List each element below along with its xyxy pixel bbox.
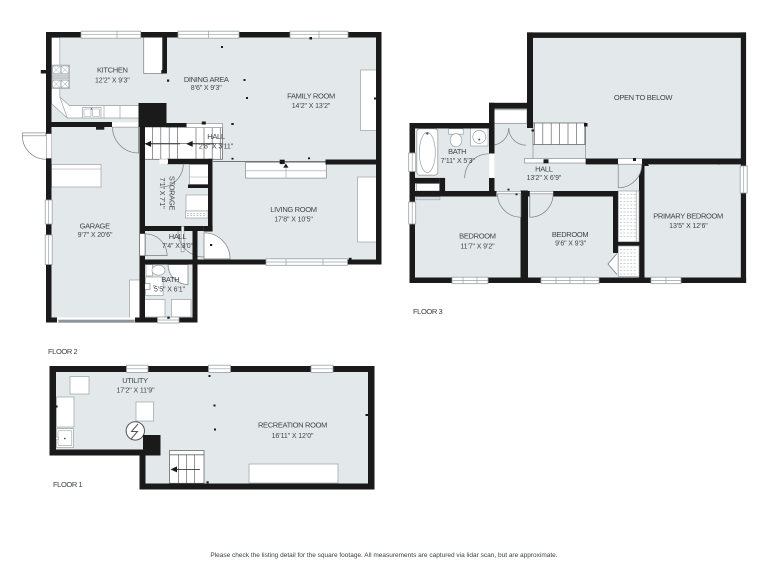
svg-text:HALL: HALL xyxy=(169,232,187,241)
svg-text:STORAGE: STORAGE xyxy=(168,176,177,211)
svg-text:13’5" X 12’6": 13’5" X 12’6" xyxy=(669,223,708,230)
svg-text:Please check the listing detai: Please check the listing detail for the … xyxy=(210,552,557,559)
svg-text:FAMILY ROOM: FAMILY ROOM xyxy=(287,91,335,100)
svg-text:9’7" X 20’6": 9’7" X 20’6" xyxy=(78,232,113,239)
svg-text:BEDROOM: BEDROOM xyxy=(552,230,589,239)
svg-text:RECREATION ROOM: RECREATION ROOM xyxy=(258,421,327,430)
svg-text:12’2" X 9’3": 12’2" X 9’3" xyxy=(95,78,130,85)
svg-text:16’11" X 12’0": 16’11" X 12’0" xyxy=(272,433,314,440)
svg-text:BATH: BATH xyxy=(161,275,179,284)
svg-text:8’6" X 9’3": 8’6" X 9’3" xyxy=(191,85,223,92)
svg-text:HALL: HALL xyxy=(207,132,225,141)
svg-text:OPEN TO BELOW: OPEN TO BELOW xyxy=(614,93,674,102)
svg-text:7’4" X 3’0": 7’4" X 3’0" xyxy=(162,243,194,250)
svg-text:17’8" X 10’5": 17’8" X 10’5" xyxy=(274,217,313,224)
svg-text:PRIMARY BEDROOM: PRIMARY BEDROOM xyxy=(653,212,723,221)
svg-text:LIVING ROOM: LIVING ROOM xyxy=(270,205,316,214)
svg-text:DINING AREA: DINING AREA xyxy=(184,75,229,84)
svg-text:GARAGE: GARAGE xyxy=(80,221,110,230)
svg-text:14’2" X 13’2": 14’2" X 13’2" xyxy=(292,103,331,110)
svg-text:7’11" X 5’3": 7’11" X 5’3" xyxy=(441,158,476,165)
svg-text:2’8" X 3’11": 2’8" X 3’11" xyxy=(199,143,234,150)
svg-text:HALL: HALL xyxy=(535,164,553,173)
svg-text:UTILITY: UTILITY xyxy=(122,376,148,385)
svg-text:11’7" X 9’2": 11’7" X 9’2" xyxy=(460,243,495,250)
svg-text:9’6" X 9’3": 9’6" X 9’3" xyxy=(555,241,587,248)
svg-text:BATH: BATH xyxy=(448,147,466,156)
svg-text:7’1" X 7’1": 7’1" X 7’1" xyxy=(158,178,165,210)
svg-text:5’5" X 6’1": 5’5" X 6’1" xyxy=(154,286,186,293)
svg-text:FLOOR 1: FLOOR 1 xyxy=(53,480,83,489)
svg-text:KITCHEN: KITCHEN xyxy=(97,66,128,75)
svg-text:17’2" X 11’9": 17’2" X 11’9" xyxy=(117,388,156,395)
svg-text:13’2" X 6’9": 13’2" X 6’9" xyxy=(527,175,562,182)
svg-text:FLOOR 2: FLOOR 2 xyxy=(48,347,78,356)
svg-text:BEDROOM: BEDROOM xyxy=(459,232,496,241)
svg-text:FLOOR 3: FLOOR 3 xyxy=(413,307,443,316)
